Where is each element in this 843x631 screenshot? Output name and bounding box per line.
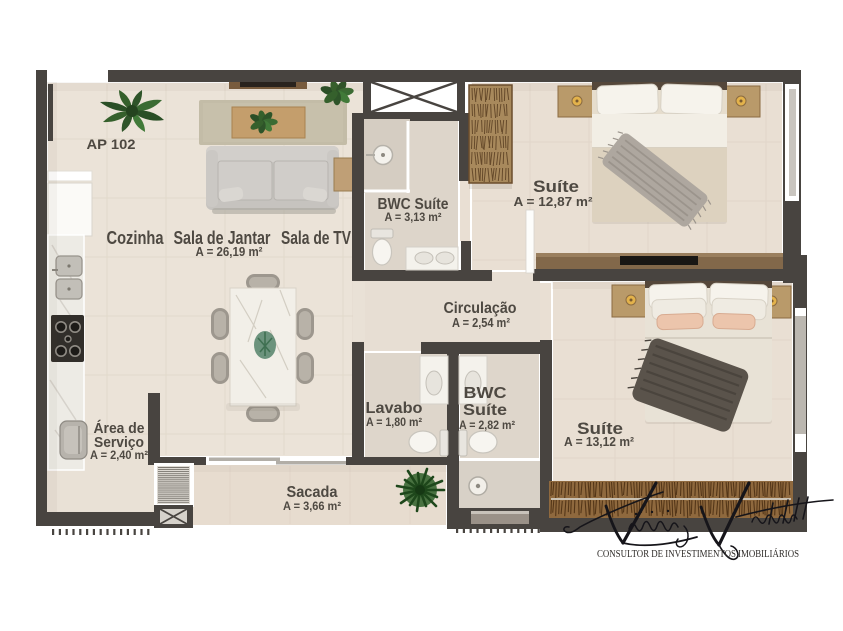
svg-text:Suíte: Suíte [463, 402, 507, 419]
svg-text:A = 13,12 m²: A = 13,12 m² [564, 435, 634, 449]
svg-text:Suíte: Suíte [533, 177, 579, 196]
svg-text:A = 12,87 m²: A = 12,87 m² [514, 195, 593, 209]
svg-text:A = 3,13 m²: A = 3,13 m² [385, 210, 442, 224]
svg-text:A = 3,66 m²: A = 3,66 m² [283, 499, 341, 513]
svg-text:BWC: BWC [464, 385, 507, 402]
svg-text:Cozinha: Cozinha [107, 228, 165, 248]
svg-text:A = 2,54 m²: A = 2,54 m² [452, 316, 510, 330]
svg-text:A = 2,82 m²: A = 2,82 m² [459, 418, 515, 432]
svg-text:Circulação: Circulação [444, 300, 517, 317]
svg-text:A = 26,19 m²: A = 26,19 m² [196, 244, 264, 259]
svg-text:A = 1,80 m²: A = 1,80 m² [366, 415, 422, 429]
svg-text:Sala de TV: Sala de TV [281, 228, 351, 248]
svg-text:AP 102: AP 102 [87, 136, 136, 152]
svg-text:CONSULTOR DE INVESTIMENTOS IMO: CONSULTOR DE INVESTIMENTOS IMOBILIÁRIOS [597, 548, 799, 560]
svg-text:A = 2,40 m²: A = 2,40 m² [90, 448, 148, 462]
